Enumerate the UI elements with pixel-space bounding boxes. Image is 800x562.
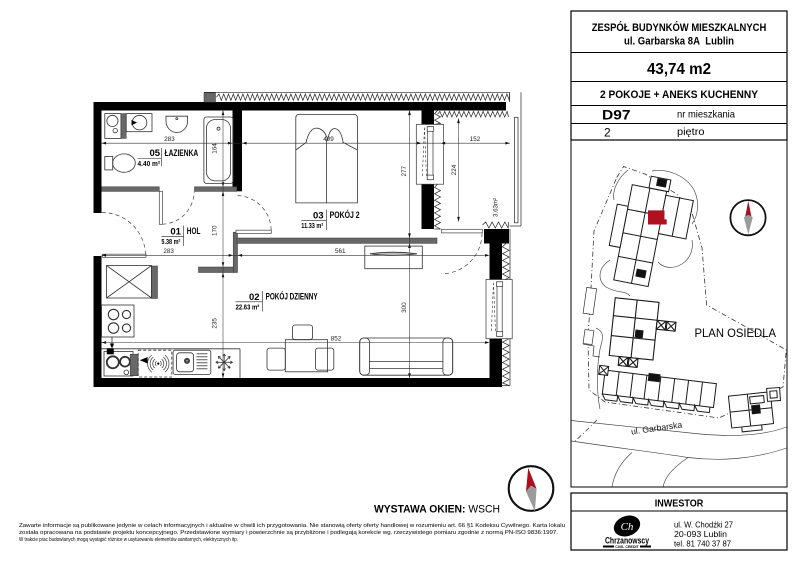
svg-text:300: 300 bbox=[401, 302, 408, 313]
svg-text:283: 283 bbox=[163, 248, 174, 255]
svg-text:03: 03 bbox=[313, 210, 324, 221]
svg-text:została opracowana na podstawi: została opracowana na podstawie projektu… bbox=[19, 530, 558, 536]
svg-text:2: 2 bbox=[604, 126, 611, 140]
svg-text:ul. Garbarska: ul. Garbarska bbox=[630, 419, 683, 436]
svg-text:nr mieszkania: nr mieszkania bbox=[677, 109, 735, 121]
svg-text:409: 409 bbox=[323, 136, 334, 143]
svg-text:Zawarte informacje są publikow: Zawarte informacje są publikowane jedyni… bbox=[19, 523, 565, 529]
svg-text:02: 02 bbox=[249, 292, 260, 303]
svg-text:43,74 m2: 43,74 m2 bbox=[647, 61, 711, 78]
svg-text:PLAN OSIEDLA: PLAN OSIEDLA bbox=[695, 328, 777, 340]
svg-text:2 POKOJE + ANEKS KUCHENNY: 2 POKOJE + ANEKS KUCHENNY bbox=[600, 89, 759, 101]
svg-text:277: 277 bbox=[401, 165, 408, 176]
svg-text:22.63 m²: 22.63 m² bbox=[236, 305, 260, 312]
svg-text:CIVIL CREDIT: CIVIL CREDIT bbox=[615, 545, 639, 549]
svg-text:164: 164 bbox=[211, 143, 218, 154]
svg-text:POKÓJ 2: POKÓJ 2 bbox=[330, 209, 360, 220]
svg-text:ul. Garbarska 8A Lublin: ul. Garbarska 8A Lublin bbox=[624, 35, 734, 47]
svg-text:4.40 m²: 4.40 m² bbox=[138, 161, 161, 168]
svg-text:283: 283 bbox=[164, 136, 175, 143]
svg-text:3.63m²: 3.63m² bbox=[493, 198, 500, 217]
svg-text:HOL: HOL bbox=[187, 226, 201, 236]
svg-text:ZESPÓŁ BUDYNKÓW MIESZKALNYCH: ZESPÓŁ BUDYNKÓW MIESZKALNYCH bbox=[592, 21, 767, 34]
svg-text:235: 235 bbox=[211, 318, 218, 329]
svg-text:11.33 m²: 11.33 m² bbox=[301, 223, 323, 230]
svg-text:561: 561 bbox=[335, 248, 346, 255]
svg-text:852: 852 bbox=[331, 335, 342, 342]
svg-text:W trakcie prac budowlanych mog: W trakcie prac budowlanych mogą wystąpić… bbox=[19, 537, 238, 543]
svg-text:POKÓJ DZIENNY: POKÓJ DZIENNY bbox=[266, 291, 318, 302]
svg-text:WYSTAWA OKIEN: WSCH: WYSTAWA OKIEN: WSCH bbox=[374, 504, 500, 516]
svg-text:20-093 Lublin: 20-093 Lublin bbox=[674, 529, 727, 539]
svg-text:D97: D97 bbox=[602, 108, 631, 123]
svg-text:piętro: piętro bbox=[677, 126, 705, 138]
svg-text:ul. W. Chodźki 27: ul. W. Chodźki 27 bbox=[674, 520, 733, 530]
svg-text:170: 170 bbox=[211, 225, 218, 236]
svg-text:01: 01 bbox=[170, 226, 181, 237]
svg-text:224: 224 bbox=[451, 164, 458, 175]
svg-text:05: 05 bbox=[150, 148, 161, 159]
svg-text:Ch: Ch bbox=[621, 521, 634, 533]
svg-text:INWESTOR: INWESTOR bbox=[655, 498, 704, 510]
svg-text:ŁAZIENKA: ŁAZIENKA bbox=[165, 148, 199, 158]
svg-text:5.38 m²: 5.38 m² bbox=[161, 239, 181, 246]
svg-text:152: 152 bbox=[470, 136, 481, 143]
svg-text:tel. 81 740 37 87: tel. 81 740 37 87 bbox=[674, 539, 731, 549]
